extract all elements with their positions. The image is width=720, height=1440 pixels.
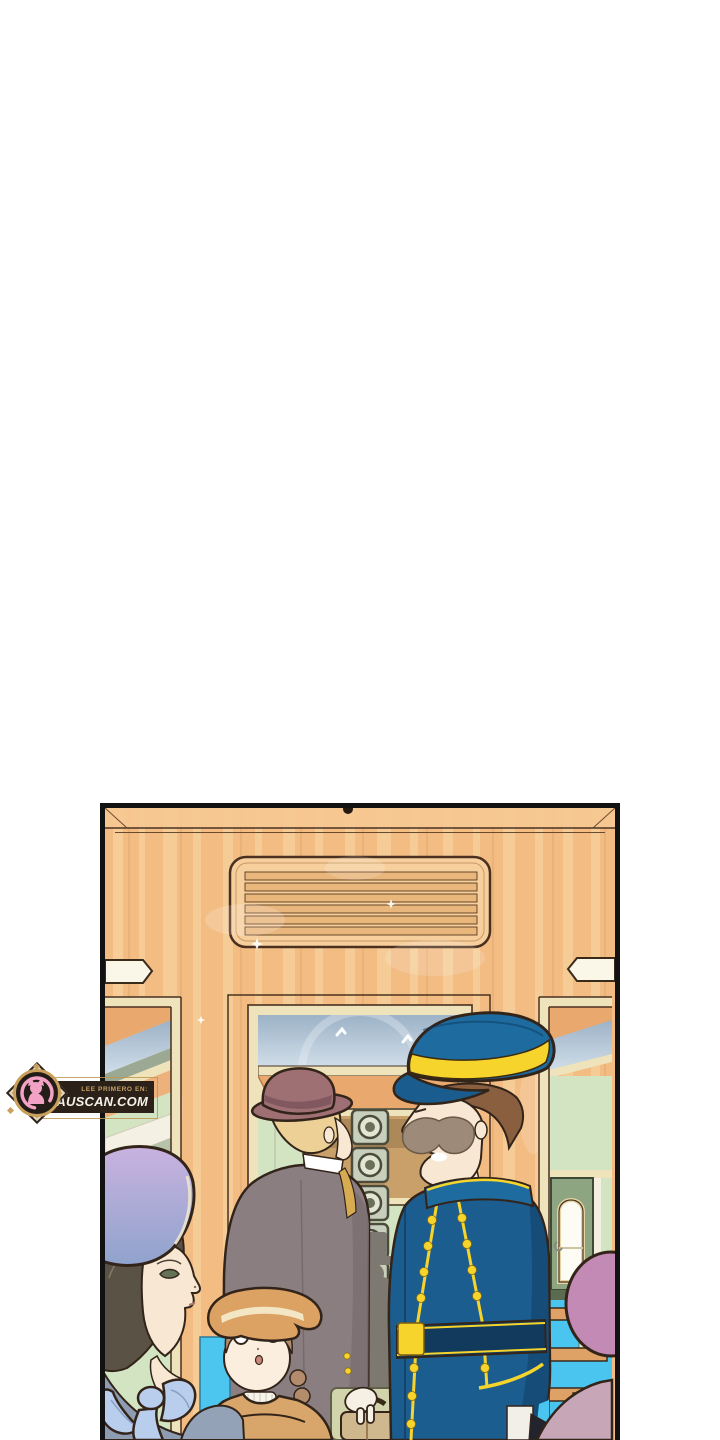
scanlation-watermark: LEE PRIMERO EN: MIAUSCAN.COM [6, 1064, 158, 1122]
webtoon-page: LEE PRIMERO EN: MIAUSCAN.COM [0, 0, 720, 1440]
comic-panel [100, 803, 620, 1440]
woman-eye [160, 1270, 179, 1279]
cat-icon [16, 1072, 58, 1114]
sparkle-icon [7, 1107, 14, 1114]
belt [397, 1320, 546, 1358]
watermark-logo-circle [13, 1069, 61, 1117]
panel-art [105, 808, 615, 1440]
watermark-tagline: LEE PRIMERO EN: [81, 1086, 148, 1094]
